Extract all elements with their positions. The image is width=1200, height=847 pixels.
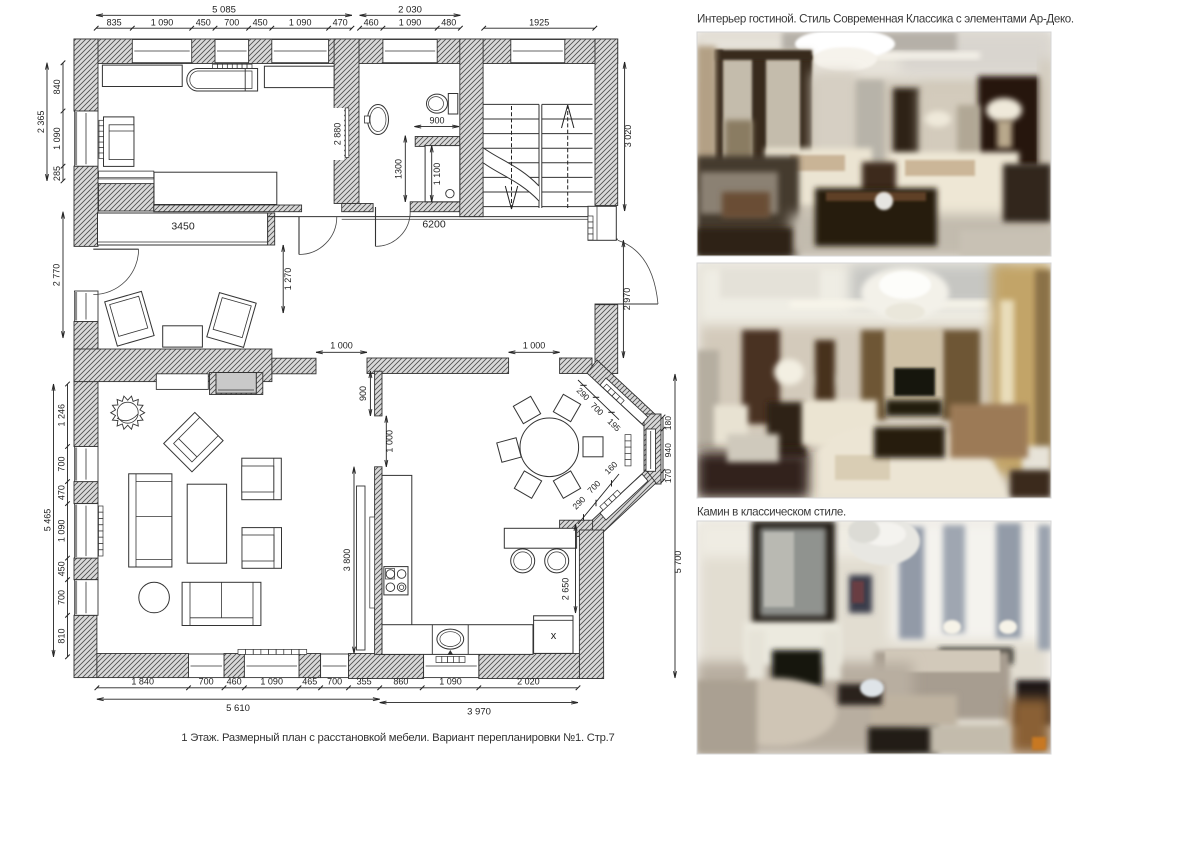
svg-text:450: 450 xyxy=(57,561,67,576)
svg-text:1 090: 1 090 xyxy=(439,677,462,687)
svg-text:1 270: 1 270 xyxy=(283,268,293,291)
svg-text:1 090: 1 090 xyxy=(151,18,174,28)
svg-text:940: 940 xyxy=(663,443,673,457)
svg-text:1 100: 1 100 xyxy=(432,163,442,186)
svg-text:835: 835 xyxy=(107,18,122,28)
svg-text:2 020: 2 020 xyxy=(517,677,540,687)
svg-text:5 085: 5 085 xyxy=(212,5,236,16)
svg-text:900: 900 xyxy=(429,116,444,126)
svg-text:285: 285 xyxy=(52,166,62,181)
svg-text:1 Этаж. Размерный план с расст: 1 Этаж. Размерный план с расстановкой ме… xyxy=(181,732,614,744)
svg-text:6200: 6200 xyxy=(422,219,446,231)
svg-text:1 000: 1 000 xyxy=(330,341,353,351)
svg-text:700: 700 xyxy=(57,590,67,605)
svg-text:x: x xyxy=(551,630,557,642)
svg-text:1 000: 1 000 xyxy=(385,430,395,453)
svg-text:460: 460 xyxy=(364,18,379,28)
svg-text:700: 700 xyxy=(327,677,342,687)
svg-text:1 090: 1 090 xyxy=(52,127,62,150)
svg-text:Интерьер гостиной. Стиль Совре: Интерьер гостиной. Стиль Современная Кла… xyxy=(697,13,1074,26)
svg-text:860: 860 xyxy=(393,677,408,687)
svg-text:5 700: 5 700 xyxy=(673,551,683,574)
svg-text:1 090: 1 090 xyxy=(260,677,283,687)
svg-text:700: 700 xyxy=(57,457,67,472)
svg-text:900: 900 xyxy=(358,386,368,401)
svg-text:480: 480 xyxy=(441,18,456,28)
svg-text:1 246: 1 246 xyxy=(56,404,66,427)
svg-text:2 770: 2 770 xyxy=(52,264,62,287)
svg-text:3 970: 3 970 xyxy=(467,707,491,718)
svg-text:460: 460 xyxy=(227,677,242,687)
svg-text:470: 470 xyxy=(57,485,67,500)
svg-text:450: 450 xyxy=(196,18,211,28)
svg-text:3 020: 3 020 xyxy=(623,125,633,148)
svg-text:2 970: 2 970 xyxy=(622,288,632,311)
svg-text:2 365: 2 365 xyxy=(36,111,46,134)
svg-text:5 610: 5 610 xyxy=(226,703,250,714)
svg-text:470: 470 xyxy=(333,18,348,28)
svg-text:170: 170 xyxy=(663,469,673,483)
svg-text:465: 465 xyxy=(302,677,317,687)
svg-text:810: 810 xyxy=(56,629,66,644)
svg-text:1 090: 1 090 xyxy=(399,18,422,28)
svg-text:5 465: 5 465 xyxy=(43,509,53,532)
svg-text:1 840: 1 840 xyxy=(131,677,154,687)
svg-text:840: 840 xyxy=(52,79,62,94)
svg-text:355: 355 xyxy=(357,677,372,687)
svg-text:1300: 1300 xyxy=(394,159,404,179)
svg-text:3450: 3450 xyxy=(171,221,195,233)
svg-text:3 800: 3 800 xyxy=(342,549,352,572)
svg-text:1 090: 1 090 xyxy=(289,18,312,28)
svg-text:2 030: 2 030 xyxy=(398,5,422,16)
svg-text:2 880: 2 880 xyxy=(333,123,343,146)
svg-text:1925: 1925 xyxy=(529,18,549,28)
svg-text:1 090: 1 090 xyxy=(57,520,67,543)
svg-text:180: 180 xyxy=(663,416,673,430)
svg-text:2 650: 2 650 xyxy=(561,578,571,601)
svg-text:700: 700 xyxy=(199,677,214,687)
svg-text:1 000: 1 000 xyxy=(523,341,546,351)
svg-text:Камин в классическом стиле.: Камин в классическом стиле. xyxy=(697,506,846,519)
svg-text:450: 450 xyxy=(253,18,268,28)
svg-text:700: 700 xyxy=(224,18,239,28)
